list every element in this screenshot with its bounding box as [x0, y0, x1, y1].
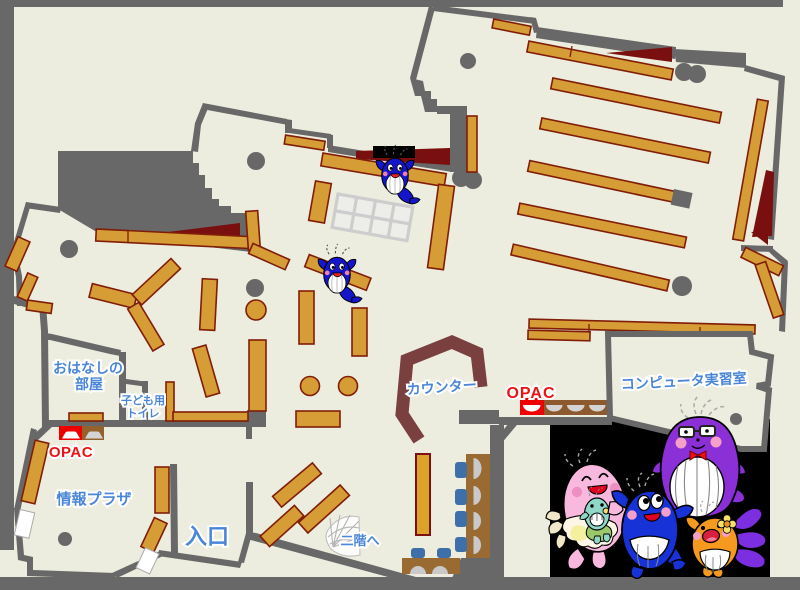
svg-text:トイレ: トイレ: [127, 407, 160, 420]
svg-text:子ども用: 子ども用: [121, 394, 165, 407]
svg-text:部屋: 部屋: [75, 376, 103, 392]
svg-text:おはなしの: おはなしの: [53, 360, 123, 376]
svg-text:二階へ: 二階へ: [340, 533, 379, 548]
svg-text:入口: 入口: [185, 524, 229, 549]
svg-text:情報プラザ: 情報プラザ: [56, 490, 131, 508]
svg-text:OPAC: OPAC: [49, 444, 93, 461]
svg-text:OPAC: OPAC: [506, 385, 555, 402]
